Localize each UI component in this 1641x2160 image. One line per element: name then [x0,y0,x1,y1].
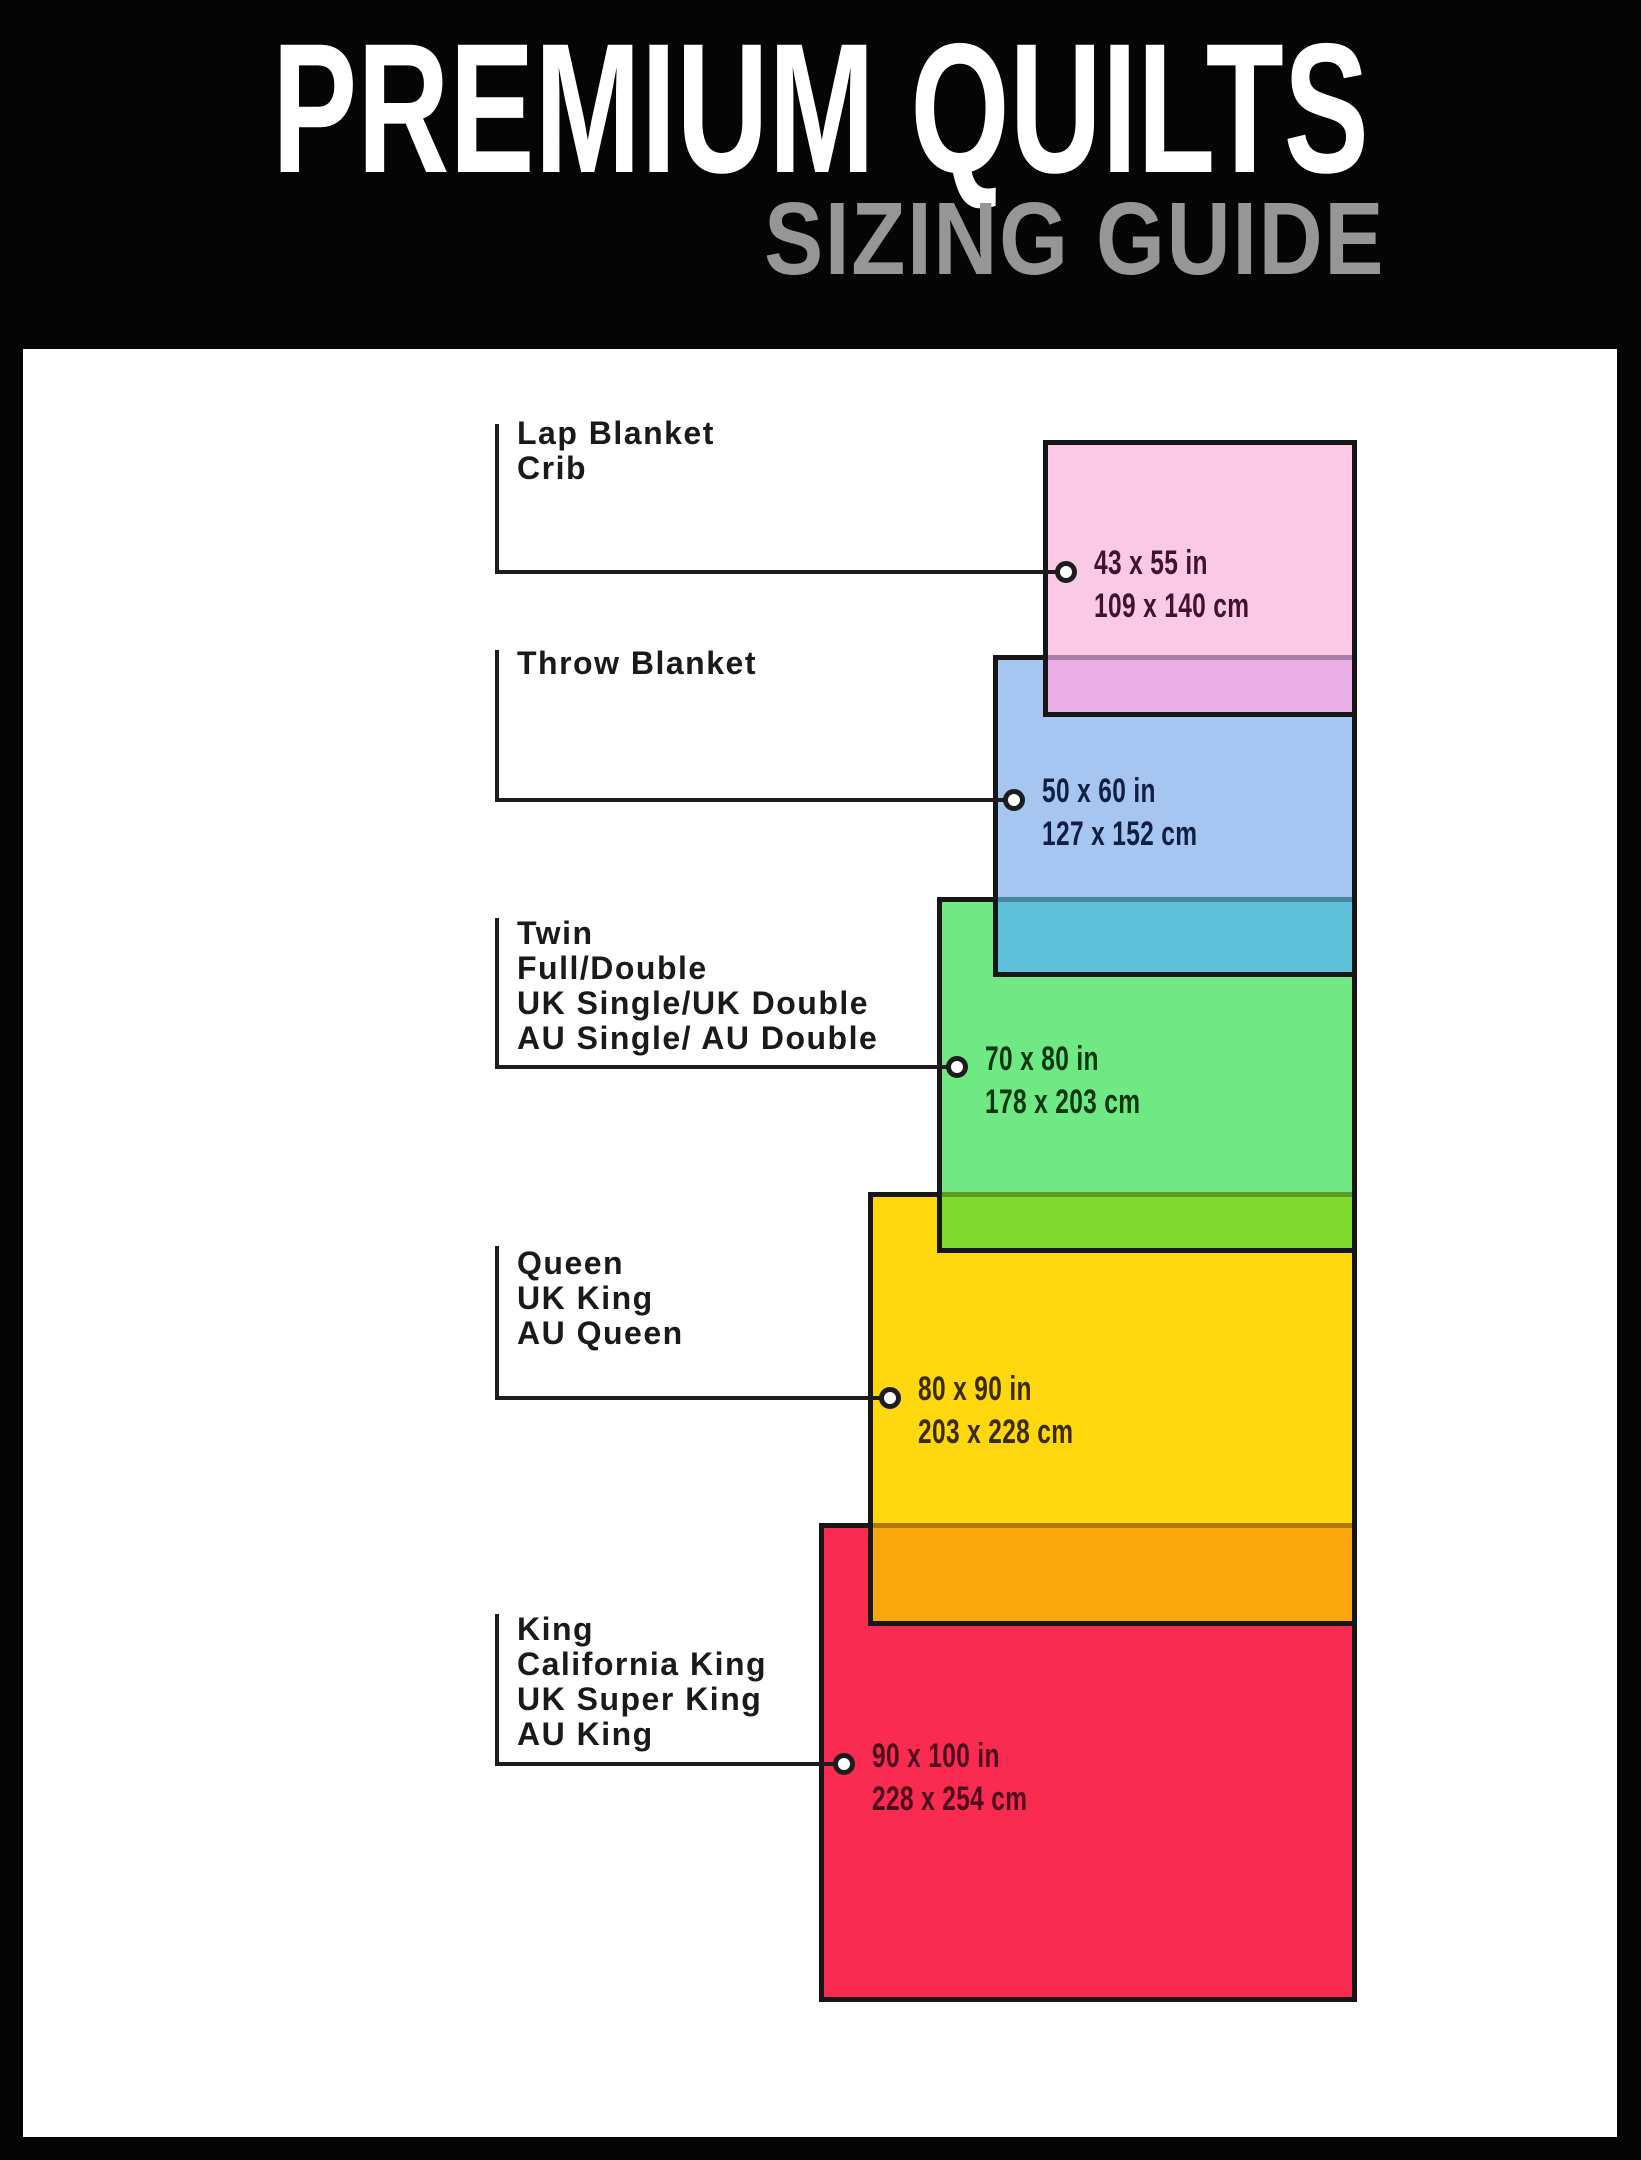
label-line: Full/Double [517,951,878,986]
label-line: UK Single/UK Double [517,986,878,1021]
label-line: AU Queen [517,1316,684,1351]
connector-hline-king [495,1762,844,1766]
label-twin: Twin Full/Double UK Single/UK Double AU … [517,916,878,1056]
dimension-cm: 178 x 203 cm [985,1081,1140,1124]
poster-subtitle: SIZING GUIDE [764,187,1385,290]
connector-vline-twin [495,918,499,1067]
label-line: UK King [517,1281,684,1316]
label-line: AU King [517,1717,767,1752]
dimensions-king: 90 x 100 in 228 x 254 cm [872,1735,1027,1821]
connector-vline-queen [495,1246,499,1398]
dimension-cm: 203 x 228 cm [918,1411,1073,1454]
dimensions-crib: 43 x 55 in 109 x 140 cm [1094,542,1249,628]
dimension-cm: 109 x 140 cm [1094,585,1249,628]
label-crib: Lap Blanket Crib [517,416,715,486]
connector-hline-crib [495,570,1066,574]
connector-dot-twin [946,1056,968,1078]
label-line: Lap Blanket [517,416,715,451]
dimension-inches: 80 x 90 in [918,1368,1073,1411]
label-line: AU Single/ AU Double [517,1021,878,1056]
connector-dot-queen [879,1387,901,1409]
label-line: King [517,1612,767,1647]
dimension-inches: 43 x 55 in [1094,542,1249,585]
label-line: Throw Blanket [517,646,757,681]
sizing-guide-poster: PREMIUM QUILTS SIZING GUIDE Lap Blanket … [0,0,1641,2160]
dimension-cm: 127 x 152 cm [1042,813,1197,856]
dimension-inches: 70 x 80 in [985,1038,1140,1081]
dimension-inches: 50 x 60 in [1042,770,1197,813]
dimension-cm: 228 x 254 cm [872,1778,1027,1821]
label-line: Queen [517,1246,684,1281]
connector-hline-throw [495,798,1014,802]
connector-vline-throw [495,650,499,800]
connector-hline-queen [495,1396,890,1400]
connector-dot-crib [1055,561,1077,583]
label-line: Crib [517,451,715,486]
label-king: King California King UK Super King AU Ki… [517,1612,767,1752]
dimensions-twin: 70 x 80 in 178 x 203 cm [985,1038,1140,1124]
connector-vline-king [495,1614,499,1764]
connector-vline-crib [495,424,499,572]
label-throw: Throw Blanket [517,646,757,681]
connector-dot-throw [1003,789,1025,811]
label-line: California King [517,1647,767,1682]
connector-dot-king [833,1753,855,1775]
poster-title: PREMIUM QUILTS [254,17,1386,202]
label-queen: Queen UK King AU Queen [517,1246,684,1351]
dimension-inches: 90 x 100 in [872,1735,1027,1778]
dimensions-throw: 50 x 60 in 127 x 152 cm [1042,770,1197,856]
label-line: UK Super King [517,1682,767,1717]
label-line: Twin [517,916,878,951]
dimensions-queen: 80 x 90 in 203 x 228 cm [918,1368,1073,1454]
connector-hline-twin [495,1065,957,1069]
